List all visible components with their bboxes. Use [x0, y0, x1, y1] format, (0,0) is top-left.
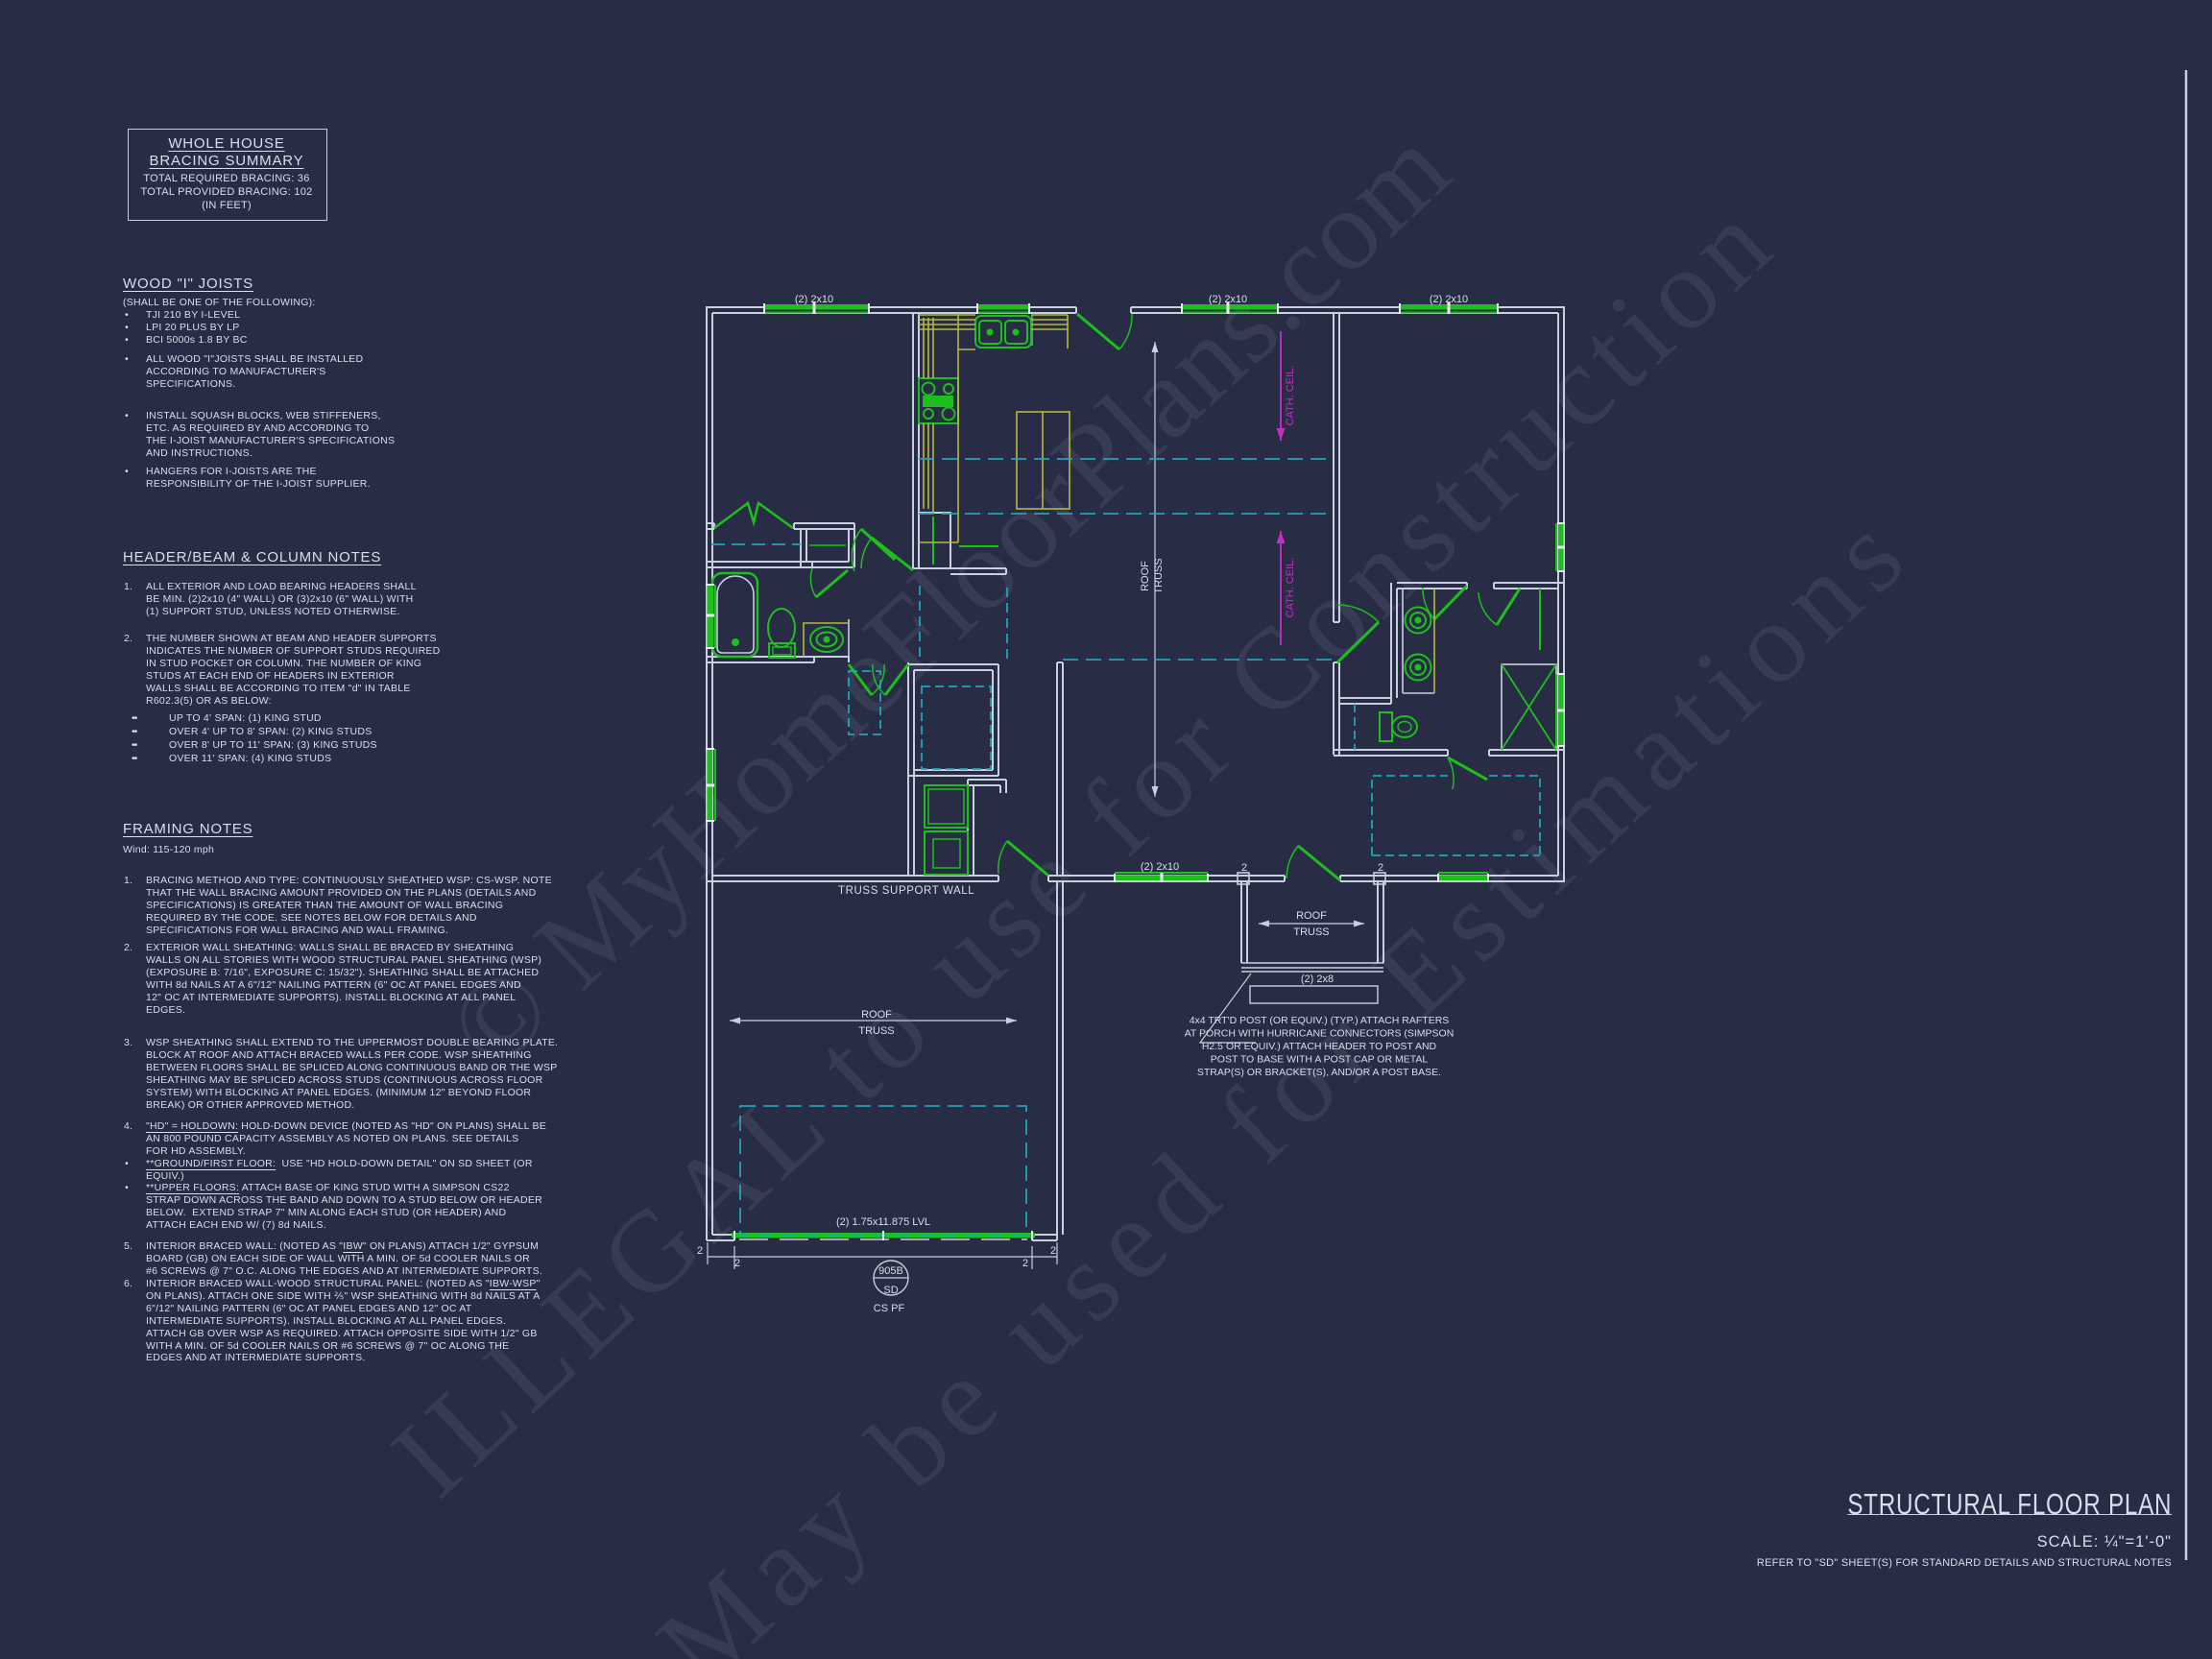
svg-text:ROOF: ROOF	[1140, 561, 1151, 591]
svg-text:TRUSS SUPPORT WALL: TRUSS SUPPORT WALL	[838, 885, 974, 897]
svg-text:2: 2	[697, 1245, 703, 1257]
svg-text:H2.5 OR EQUIV.) ATTACH HEADER: H2.5 OR EQUIV.) ATTACH HEADER TO POST AN…	[1202, 1041, 1437, 1052]
svg-text:2: 2	[1241, 862, 1247, 874]
svg-text:ROOF: ROOF	[1296, 910, 1327, 922]
svg-text:2: 2	[1050, 1245, 1056, 1257]
svg-text:2: 2	[1022, 1258, 1028, 1269]
svg-text:AT PORCH WITH HURRICANE CONNEC: AT PORCH WITH HURRICANE CONNECTORS (SIMP…	[1185, 1028, 1455, 1040]
svg-text:(2) 1.75x11.875 LVL: (2) 1.75x11.875 LVL	[836, 1216, 930, 1228]
svg-text:(2) 2x10: (2) 2x10	[1141, 861, 1179, 873]
svg-text:905B: 905B	[878, 1265, 903, 1277]
svg-text:STRAP(S) OR BRACKET(S), AND/OR: STRAP(S) OR BRACKET(S), AND/OR A POST BA…	[1197, 1067, 1441, 1078]
svg-text:(2) 2x8: (2) 2x8	[1301, 974, 1334, 985]
svg-text:TRUSS: TRUSS	[1293, 926, 1329, 938]
svg-text:POST TO BASE WITH A POST CAP O: POST TO BASE WITH A POST CAP OR METAL	[1211, 1054, 1429, 1066]
svg-text:SD: SD	[883, 1285, 898, 1296]
svg-text:4x4 TRT'D POST (OR EQUIV.) (TY: 4x4 TRT'D POST (OR EQUIV.) (TYP.) ATTACH…	[1190, 1015, 1450, 1026]
svg-text:TRUSS: TRUSS	[858, 1025, 894, 1037]
svg-text:ROOF: ROOF	[861, 1009, 892, 1021]
svg-text:CS PF: CS PF	[874, 1303, 905, 1314]
svg-text:2: 2	[734, 1258, 740, 1269]
svg-text:CATH. CEIL.: CATH. CEIL.	[1285, 366, 1296, 426]
svg-text:TRUSS: TRUSS	[1153, 558, 1165, 593]
svg-text:2: 2	[1378, 862, 1383, 874]
svg-text:CATH. CEIL.: CATH. CEIL.	[1285, 558, 1296, 618]
